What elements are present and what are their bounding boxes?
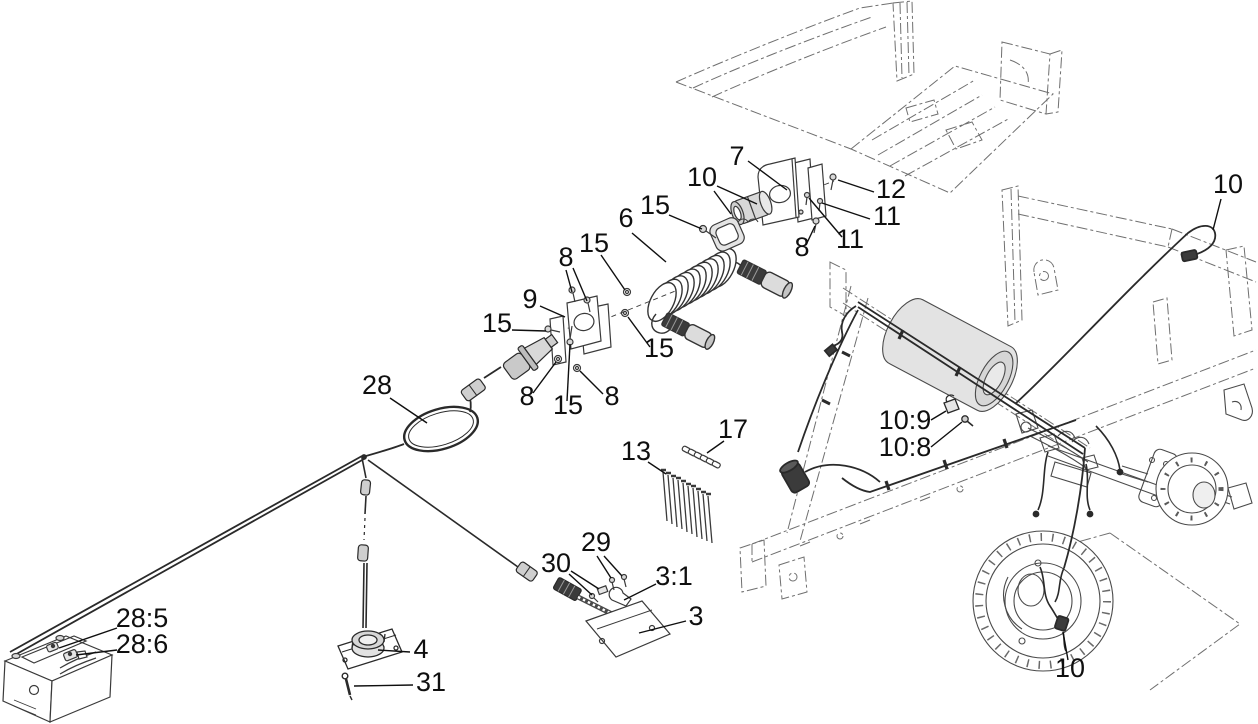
callout-leader-line bbox=[354, 685, 413, 686]
callout-label: 17 bbox=[718, 414, 748, 444]
callout-label: 15 bbox=[640, 190, 670, 220]
callout-label: 15 bbox=[579, 228, 609, 258]
callout-label: 8 bbox=[558, 242, 573, 272]
callout-label: 10:8 bbox=[879, 432, 932, 462]
callout-label: 11 bbox=[873, 201, 901, 231]
callout-label: 10 bbox=[687, 162, 717, 192]
exploded-parts-diagram: 7101561211118815915158158281010:910:8131… bbox=[0, 0, 1258, 724]
callout-label: 9 bbox=[522, 284, 537, 314]
callout-label: 13 bbox=[621, 436, 651, 466]
callout-label: 7 bbox=[729, 141, 744, 171]
callout-label: 3 bbox=[688, 601, 703, 631]
callout-leader-line bbox=[512, 330, 546, 331]
callout-label: 15 bbox=[553, 390, 583, 420]
battery bbox=[3, 636, 112, 723]
callout-leader-line bbox=[714, 191, 731, 214]
parts-diagram-page: 7101561211118815915158158281010:910:8131… bbox=[0, 0, 1258, 724]
breakaway-switch bbox=[338, 629, 402, 669]
callout: 15 bbox=[640, 190, 702, 229]
callout-label: 10 bbox=[1213, 169, 1243, 199]
callout-leader-line bbox=[669, 215, 702, 229]
callout-leader-line bbox=[931, 422, 962, 447]
callout-leader-line bbox=[580, 371, 603, 394]
callout-label: 12 bbox=[876, 174, 906, 204]
callout-leader-line bbox=[624, 584, 656, 600]
callout-label: 8 bbox=[604, 381, 619, 411]
callout: 31 bbox=[354, 667, 446, 697]
callout-label: 10:9 bbox=[879, 405, 932, 435]
callout: 12 bbox=[838, 174, 906, 204]
callout: 15 bbox=[579, 228, 625, 290]
callout: 17 bbox=[707, 414, 748, 453]
callout-leader-line bbox=[540, 306, 565, 317]
cord-end-connector bbox=[736, 259, 794, 300]
callout: 28 bbox=[362, 370, 427, 423]
callout-leader-line bbox=[838, 180, 874, 192]
callout: 13 bbox=[621, 436, 666, 474]
callout-label: 3:1 bbox=[655, 561, 693, 591]
callout: 8 bbox=[794, 226, 815, 262]
callout-label: 6 bbox=[618, 203, 633, 233]
callout-label: 8 bbox=[519, 381, 534, 411]
callout-leader-line bbox=[597, 556, 611, 578]
breakaway-pin bbox=[342, 673, 352, 700]
callout: 3:1 bbox=[624, 561, 693, 600]
callout-leader-line bbox=[601, 255, 625, 290]
callout-label: 8 bbox=[794, 232, 809, 262]
callout-label: 31 bbox=[416, 667, 446, 697]
callout: 29 bbox=[581, 527, 622, 578]
callout-leader-line bbox=[604, 556, 622, 576]
callout-leader-line bbox=[1213, 199, 1221, 230]
callout: 10 bbox=[1213, 169, 1243, 230]
callout-label: 15 bbox=[482, 308, 512, 338]
actuator-cylinder bbox=[873, 291, 1027, 418]
callout-leader-line bbox=[573, 268, 587, 301]
callout-label: 28 bbox=[362, 370, 392, 400]
callout-leader-line bbox=[822, 203, 870, 219]
callout-leader-line bbox=[390, 398, 427, 423]
callout-label: 30 bbox=[541, 548, 571, 578]
callout: 10:9 bbox=[879, 405, 946, 435]
callout-label: 28:6 bbox=[116, 629, 169, 659]
callout: 8 bbox=[580, 371, 620, 411]
callout-leader-line bbox=[931, 411, 946, 420]
callout-label: 11 bbox=[836, 224, 864, 254]
callout-label: 10 bbox=[1055, 653, 1085, 683]
callout: 9 bbox=[522, 284, 565, 317]
callout-label: 4 bbox=[413, 634, 428, 664]
cable-ties bbox=[661, 470, 712, 543]
callout-leader-line bbox=[632, 233, 666, 262]
wire-clips bbox=[682, 445, 721, 468]
callout-label: 15 bbox=[644, 333, 674, 363]
callout-label: 29 bbox=[581, 527, 611, 557]
main-harness-28 bbox=[10, 327, 642, 700]
